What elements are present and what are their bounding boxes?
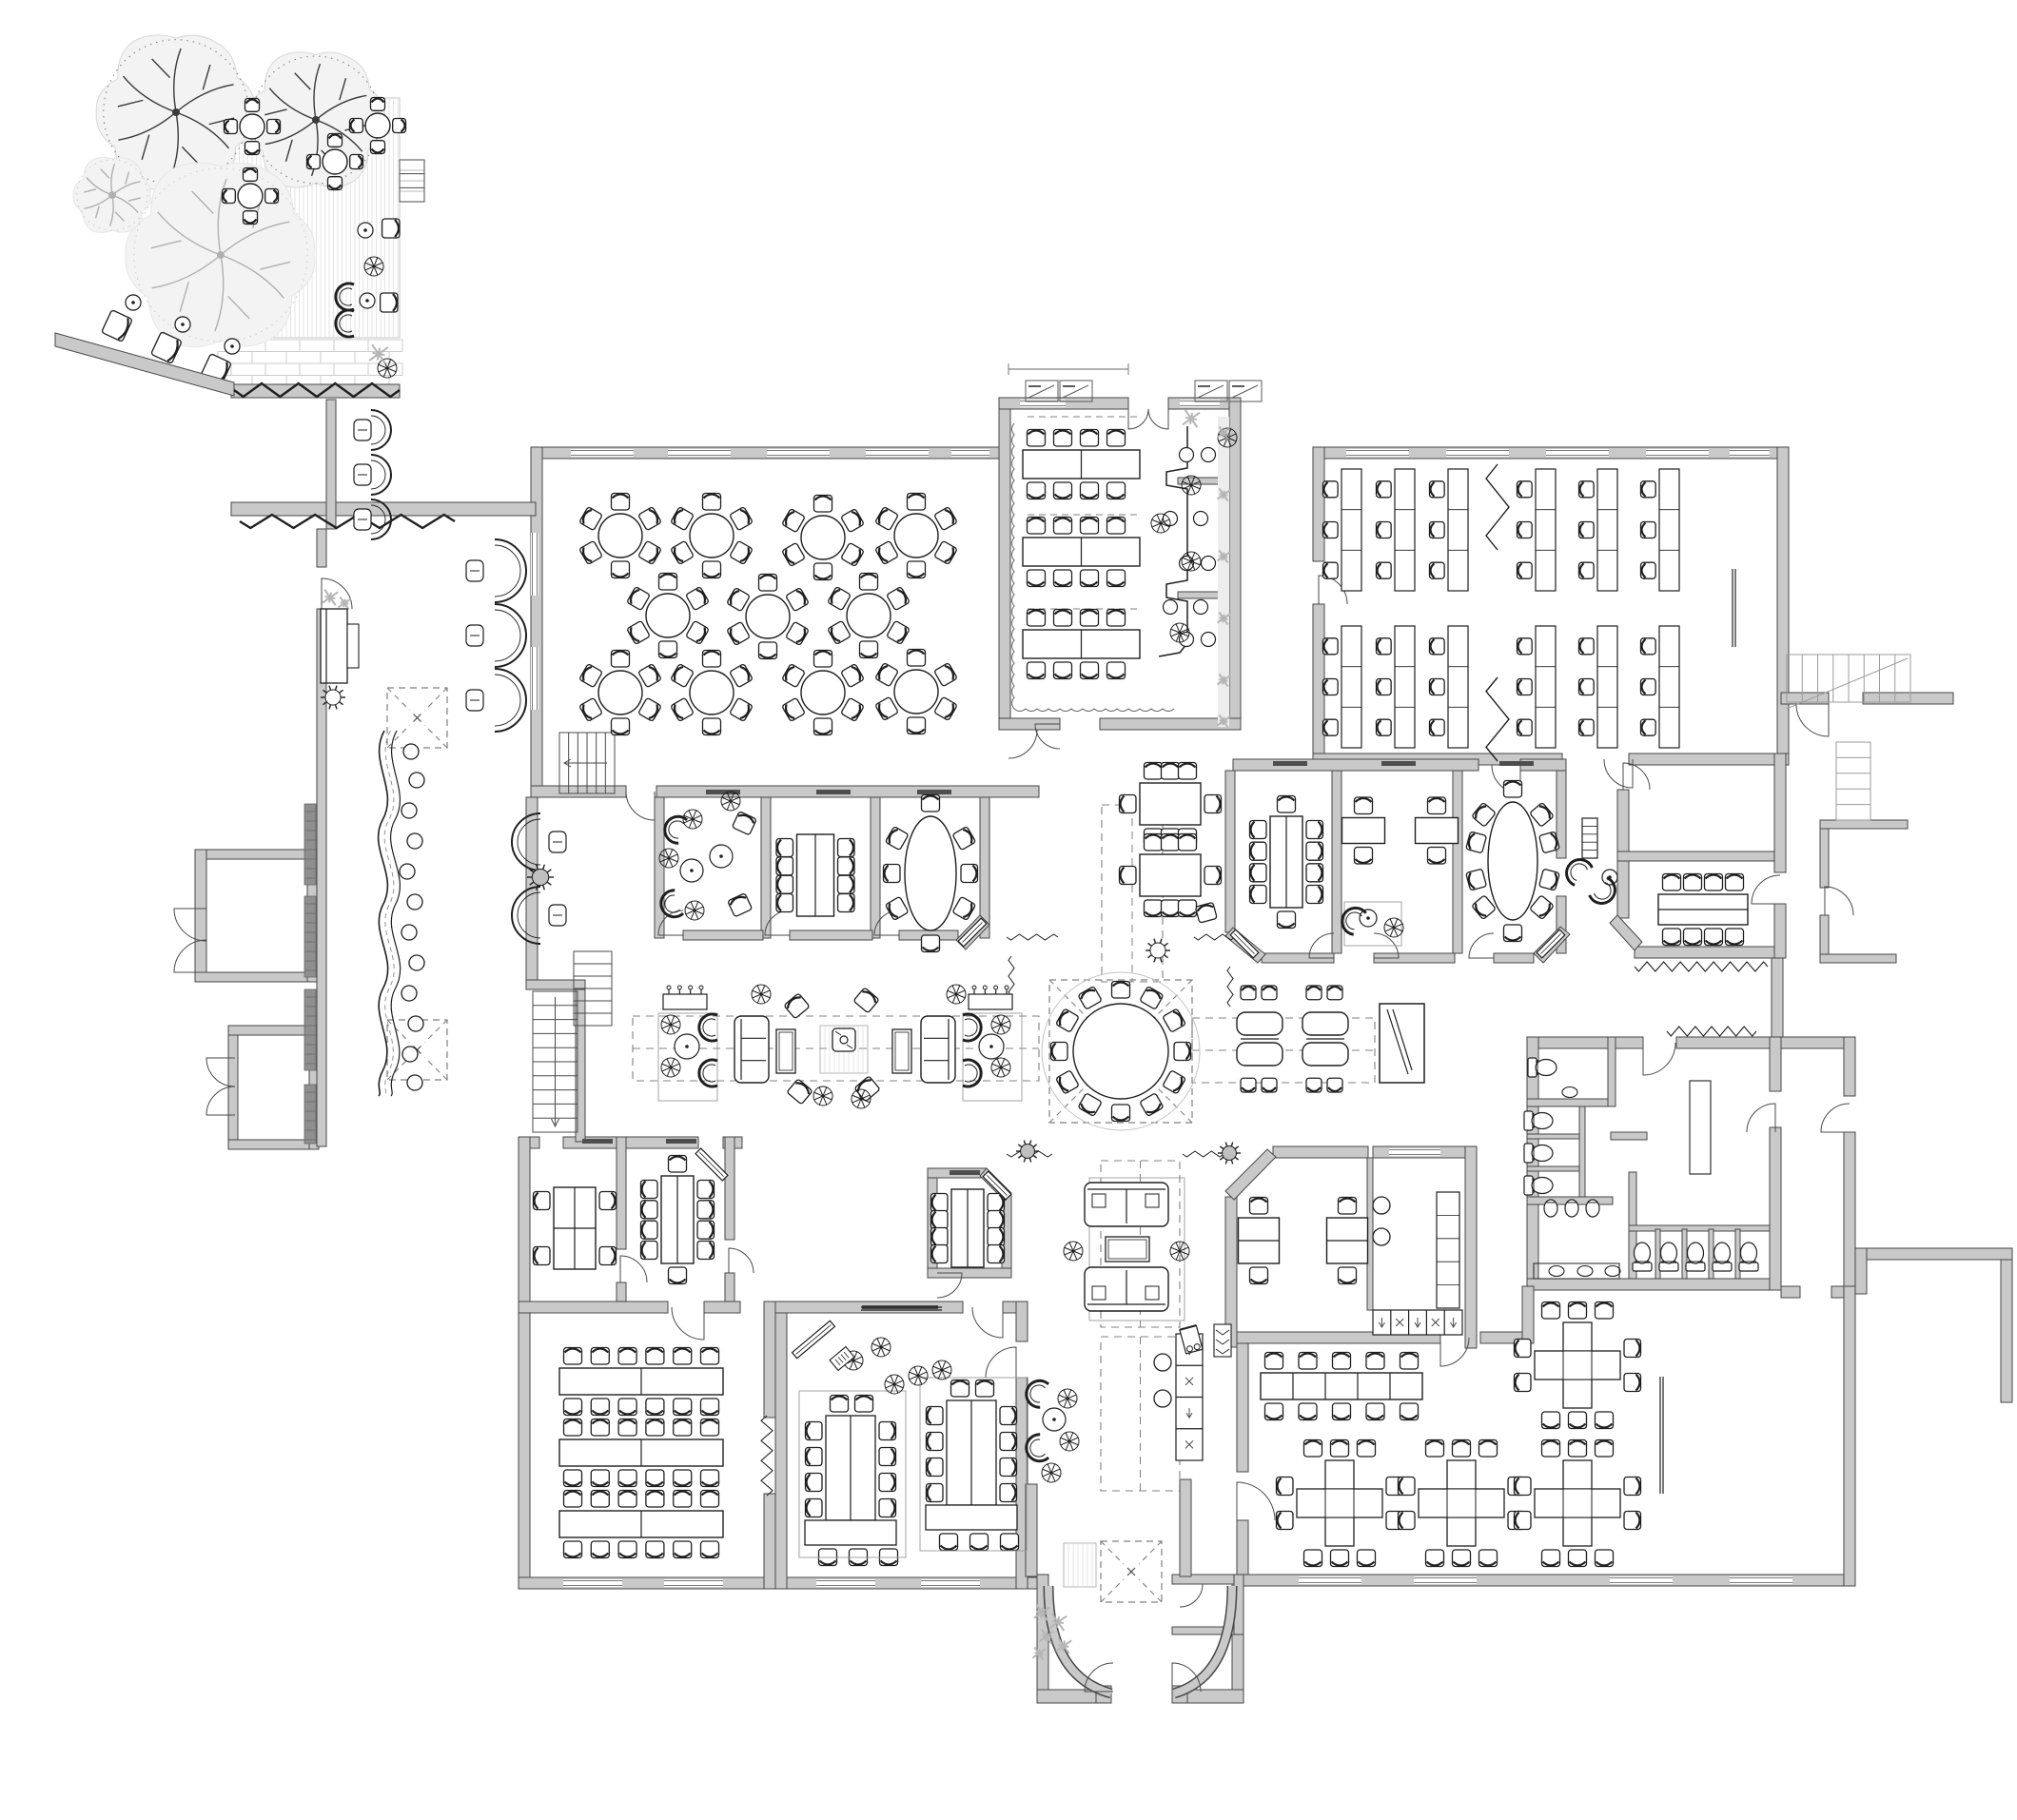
booth — [354, 410, 391, 450]
stool — [1154, 1390, 1171, 1407]
room-focus-room — [928, 1168, 1013, 1282]
room-entrance-vestibule — [1037, 1575, 1243, 1703]
room-reception-lobby — [317, 514, 536, 1151]
room-meeting-room-10b — [626, 1137, 734, 1301]
room-stair-lobby — [526, 980, 585, 1142]
wall-benches — [304, 804, 316, 1144]
room-duo-office — [1337, 759, 1458, 961]
room-conference-room-8 — [764, 792, 872, 940]
room-dining-hall — [531, 447, 1010, 797]
room-training-room — [999, 398, 1241, 730]
room-meeting-room-10 — [1225, 759, 1337, 963]
room-oval-meeting-room-8 — [872, 792, 992, 940]
plant-icon — [1016, 1141, 1039, 1163]
room-meeting-room-8 — [1617, 861, 1786, 963]
plant-icon — [1042, 1463, 1061, 1482]
room-lounge-corridor — [633, 989, 1042, 1108]
booth-cluster — [1302, 986, 1348, 1092]
floor-plan-canvas — [0, 0, 2017, 1820]
booth-cluster — [1237, 986, 1283, 1092]
atrium-booths — [1237, 986, 1348, 1092]
room-outdoor-patio — [57, 57, 419, 400]
room-cafeteria — [1237, 1286, 1855, 1586]
room-restrooms — [1527, 1037, 1781, 1290]
plant-icon — [1060, 1432, 1079, 1451]
side-table — [1043, 1408, 1066, 1431]
plant-icon — [1146, 939, 1170, 963]
stool — [1154, 1354, 1171, 1371]
meeting-table — [1120, 763, 1222, 846]
room-team-office — [519, 1137, 626, 1301]
room-quiet-room — [1617, 753, 1786, 861]
room-classroom — [519, 1301, 775, 1589]
room-open-office — [1313, 447, 1789, 765]
dimension-lines — [1008, 363, 1128, 375]
plant-icon — [1058, 1389, 1077, 1408]
mobile-screen — [1380, 1004, 1424, 1083]
room-project-room — [775, 1301, 1028, 1586]
floor-plan-page — [0, 0, 2017, 1820]
room-media-lounge — [1075, 1175, 1189, 1327]
room-regions — [57, 57, 1855, 1703]
room-atrium — [1037, 970, 1204, 1137]
side-table — [1602, 870, 1617, 885]
booth — [354, 455, 391, 495]
room-lounge-room — [655, 792, 764, 940]
room-oval-meeting-room-10 — [1458, 759, 1566, 963]
lounge-chair — [1195, 902, 1217, 923]
